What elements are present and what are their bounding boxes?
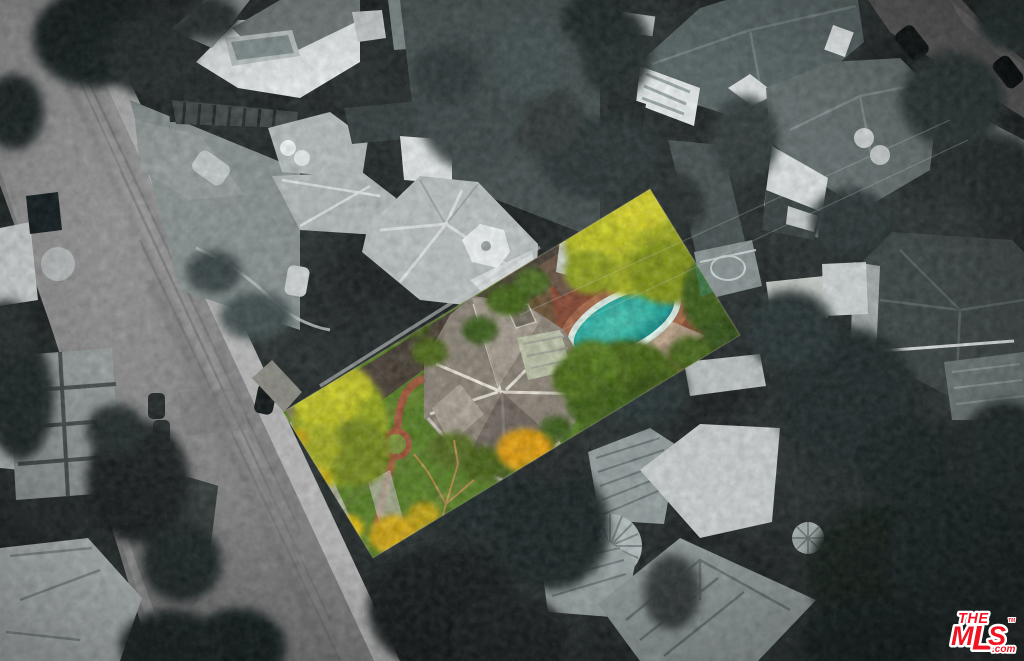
svg-text:.com: .com <box>992 644 1015 655</box>
svg-text:TM: TM <box>1008 618 1016 624</box>
svg-text:M: M <box>951 621 974 651</box>
